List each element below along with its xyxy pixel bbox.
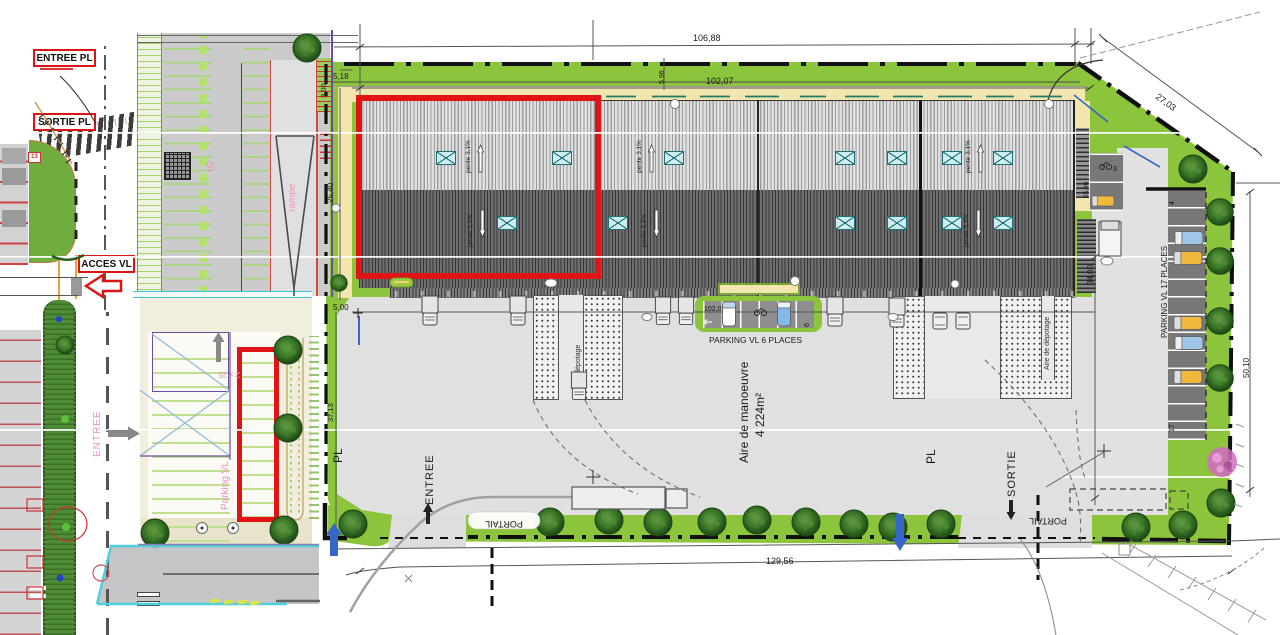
svg-text:5,18: 5,18 — [333, 72, 349, 81]
svg-text:4 224m²: 4 224m² — [753, 393, 767, 437]
svg-text:6: 6 — [804, 323, 811, 327]
svg-text:3,00: 3,00 — [319, 83, 328, 98]
svg-text:rampe: rampe — [287, 183, 298, 212]
svg-text:129,56: 129,56 — [766, 556, 794, 566]
svg-text:25,40: 25,40 — [1083, 181, 1090, 198]
svg-text:Parking VL: Parking VL — [220, 461, 231, 510]
svg-text:27,03: 27,03 — [1154, 92, 1178, 113]
svg-text:ENTREE: ENTREE — [424, 454, 436, 505]
svg-text:5,00: 5,00 — [333, 303, 349, 312]
svg-text:5,96: 5,96 — [659, 70, 666, 84]
svg-text:PARKING VL 6 PLACES: PARKING VL 6 PLACES — [709, 335, 802, 345]
svg-text:ENTREE: ENTREE — [92, 410, 103, 457]
svg-text:pente 3,1%: pente 3,1% — [963, 214, 970, 247]
svg-text:PORTAIL: PORTAIL — [1029, 516, 1067, 526]
svg-text:pente 3,1%: pente 3,1% — [465, 140, 472, 173]
svg-text:25,40: 25,40 — [326, 182, 335, 203]
svg-text:37,13: 37,13 — [326, 403, 335, 422]
svg-text:4: 4 — [1169, 201, 1176, 205]
svg-text:SORTIE: SORTIE — [1006, 450, 1018, 497]
svg-text:Aire de manoeuvre: Aire de manoeuvre — [737, 361, 751, 463]
svg-text:PL: PL — [331, 448, 345, 463]
svg-text:pente 3,1%: pente 3,1% — [965, 140, 972, 173]
svg-text:PARKING VL 17 PLACES: PARKING VL 17 PLACES — [1160, 246, 1169, 338]
svg-text:3: 3 — [1113, 166, 1117, 173]
svg-text:34,00: 34,00 — [1086, 264, 1095, 285]
svg-text:2 x 25: 2 x 25 — [218, 370, 240, 379]
svg-text:17: 17 — [1169, 424, 1176, 432]
svg-text:PL: PL — [924, 449, 938, 464]
svg-text:PORTAIL: PORTAIL — [485, 519, 523, 529]
svg-text:Aire de dépotage: Aire de dépotage — [1044, 317, 1051, 370]
svg-text:pente 3,1%: pente 3,1% — [641, 214, 648, 247]
svg-text:pente 3,1%: pente 3,1% — [636, 140, 643, 173]
svg-text:50,10: 50,10 — [1242, 357, 1251, 378]
svg-text:pente 3,1%: pente 3,1% — [467, 214, 474, 247]
svg-text:102,07: 102,07 — [706, 76, 734, 86]
svg-text:IS: IS — [205, 162, 217, 172]
svg-text:106,88: 106,88 — [693, 33, 721, 43]
